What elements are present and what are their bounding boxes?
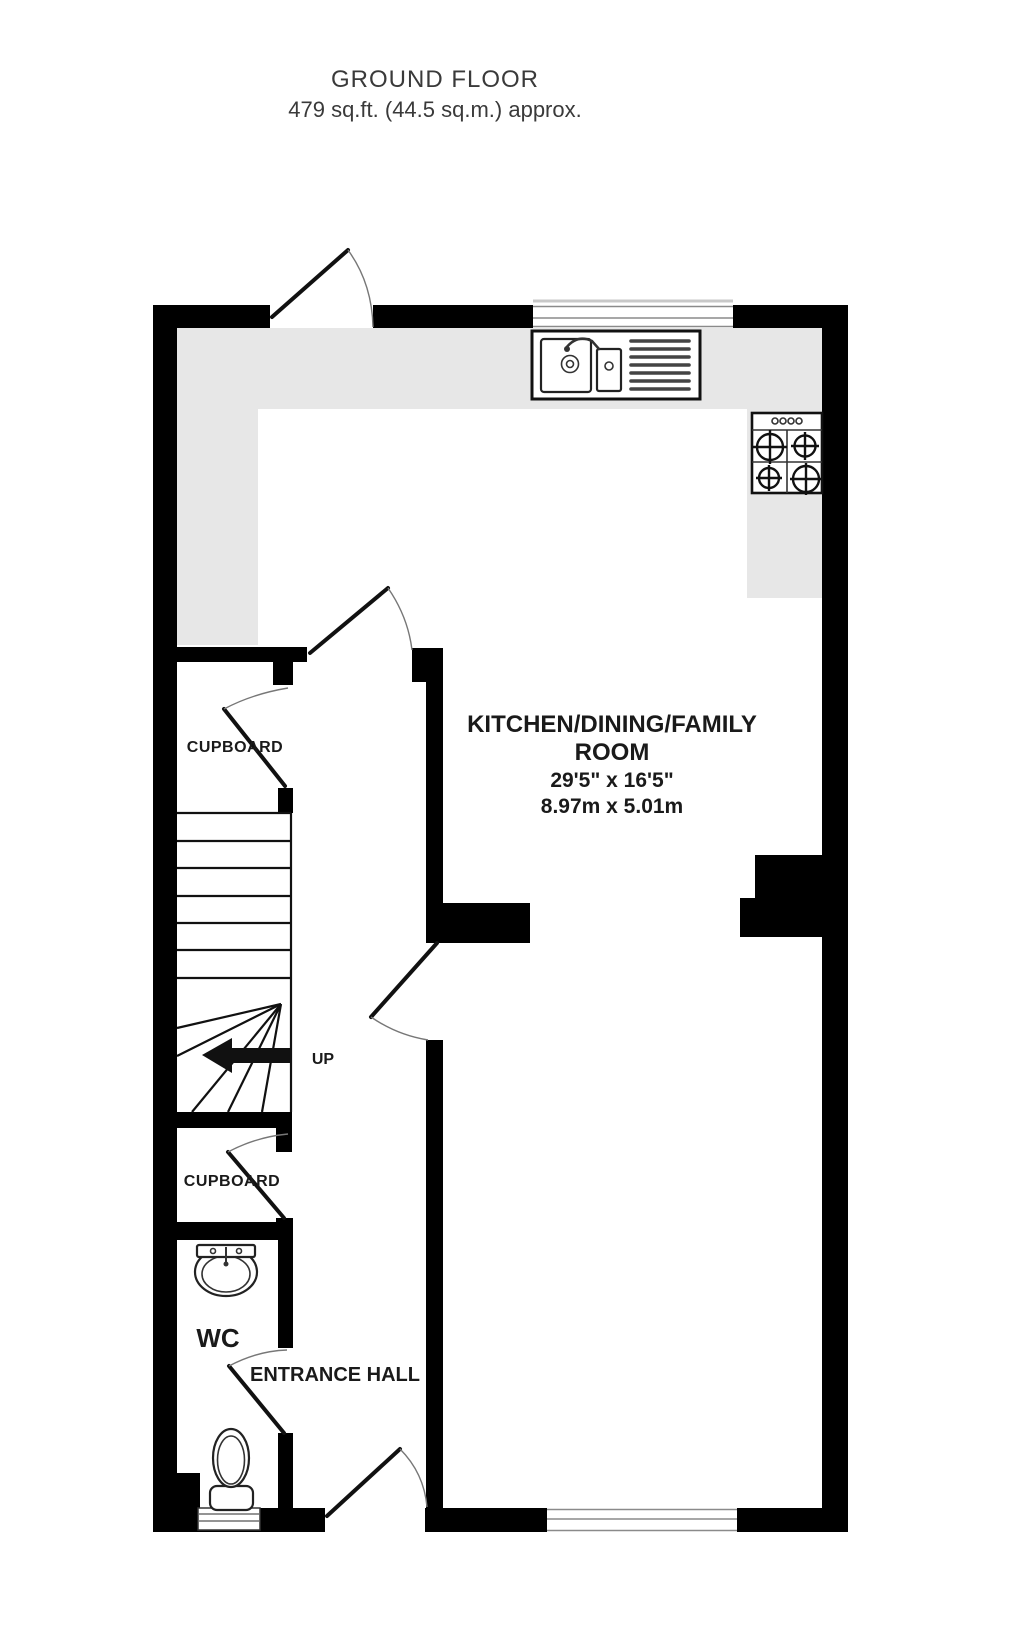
wc-door: [229, 1350, 287, 1433]
wall-left: [153, 305, 177, 1532]
wc-label: WC: [196, 1323, 240, 1353]
kitchen-dims-imperial: 29'5" x 16'5": [550, 769, 673, 792]
wall-divider-stub: [443, 903, 530, 943]
wall-divider-lower: [426, 1040, 443, 1508]
wall-cupboard-top: [177, 647, 307, 662]
stairs-up-label: UP: [312, 1051, 335, 1068]
wall-divider-upper: [426, 648, 443, 943]
cupboard-bottom-label: CUPBOARD: [184, 1173, 280, 1190]
wall-wc-top: [153, 1222, 293, 1240]
wash-basin-icon: [195, 1245, 257, 1296]
cupboard-top-label: CUPBOARD: [187, 739, 283, 756]
wall-top-2: [373, 305, 533, 328]
hob-icon: [752, 413, 822, 495]
window-bottom: [547, 1508, 737, 1532]
entrance-hall-label: ENTRANCE HALL: [250, 1364, 420, 1386]
up-arrow-icon: [202, 1038, 291, 1073]
wall-top-1: [153, 305, 270, 328]
inner-hall-door: [371, 943, 437, 1040]
wall-bottom-2: [425, 1508, 547, 1532]
wall-bottom-3: [737, 1508, 848, 1532]
stairs: [177, 813, 291, 1112]
wall-right: [822, 305, 848, 1532]
wall-wc-right-lower: [278, 1433, 293, 1508]
floorplan-page: GROUND FLOOR 479 sq.ft. (44.5 sq.m.) app…: [0, 0, 1024, 1650]
kitchen-label-line2: ROOM: [575, 739, 650, 766]
kitchen-counters: [177, 328, 822, 645]
floor-plan-drawing: KITCHEN/DINING/FAMILY ROOM 29'5" x 16'5"…: [0, 0, 1024, 1650]
kitchen-door: [310, 588, 412, 653]
back-door: [272, 250, 373, 327]
toilet-icon: [198, 1429, 260, 1530]
sink-unit-icon: [532, 331, 700, 399]
wall-stairs-bottom: [153, 1112, 292, 1128]
wall-wc-right-upper: [278, 1240, 293, 1348]
chimney-breast: [755, 855, 822, 937]
kitchen-label-line1: KITCHEN/DINING/FAMILY: [467, 711, 757, 738]
window-top: [533, 301, 733, 328]
cupboard-top-door: [224, 688, 288, 786]
front-door: [327, 1449, 427, 1516]
drainer-icon: [631, 341, 689, 389]
kitchen-dims-metric: 8.97m x 5.01m: [541, 795, 683, 818]
